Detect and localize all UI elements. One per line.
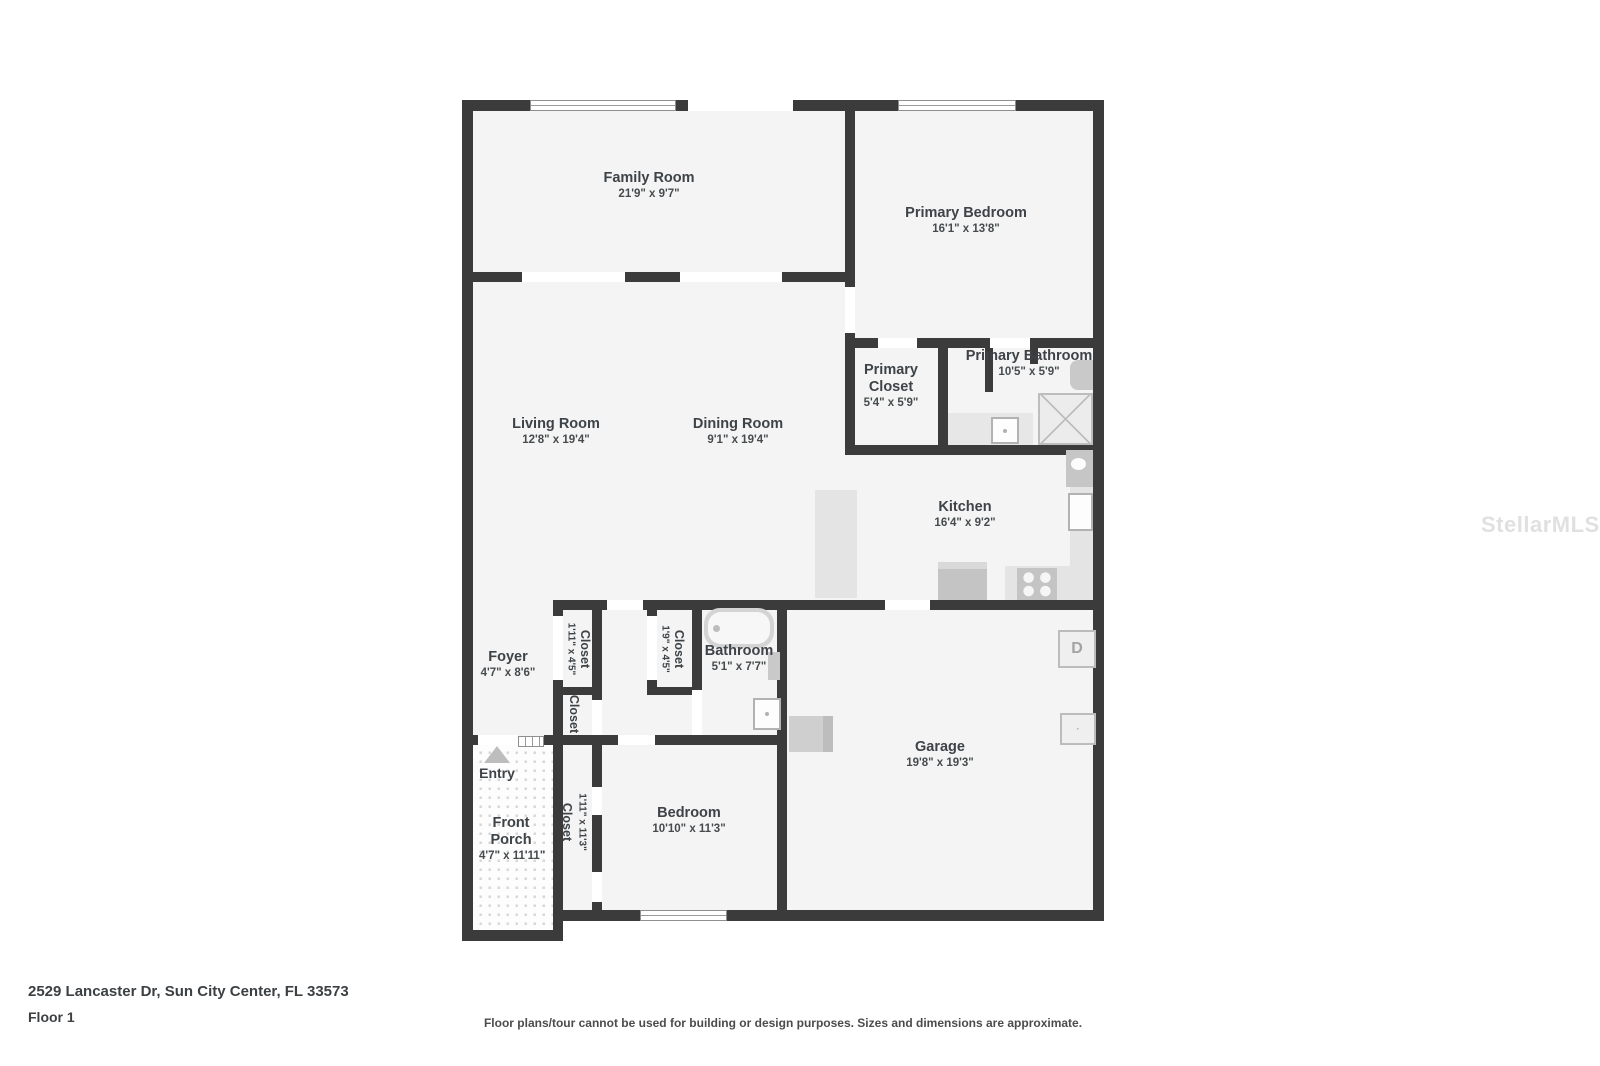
room-label-living-room: Living Room 12'8" x 19'4" — [512, 416, 600, 448]
room-name: Primary Closet — [855, 362, 927, 396]
stellar-mls-watermark: StellarMLS — [1481, 512, 1600, 538]
shower-icon — [1038, 393, 1093, 445]
door-opening — [592, 787, 602, 815]
room-dims: 5'1" x 7'7" — [705, 661, 773, 675]
door-opening — [522, 272, 625, 282]
wall — [625, 272, 680, 282]
room-label-front-porch: Front Porch 4'7" x 11'11" — [479, 815, 543, 864]
room-label-kitchen: Kitchen 16'4" x 9'2" — [934, 499, 995, 531]
wall — [1016, 100, 1104, 111]
door-opening — [845, 287, 855, 333]
wall — [917, 338, 990, 348]
dishwasher-icon — [938, 562, 987, 600]
wall — [938, 338, 948, 455]
room-name: Bathroom — [705, 643, 773, 660]
entry-sidelight-window — [518, 736, 544, 747]
room-label-family-room: Family Room 21'9" x 9'7" — [603, 170, 694, 202]
window — [640, 910, 727, 921]
toilet-icon — [753, 698, 781, 730]
wall — [777, 600, 787, 921]
room-dims: 10'5" x 5'9" — [966, 366, 1093, 380]
wall — [1030, 338, 1104, 348]
room-name: Primary Bedroom — [905, 205, 1027, 222]
room-label-bedroom: Bedroom 10'10" x 11'3" — [652, 805, 725, 837]
room-label-hall-closet-a: Closet — [578, 630, 592, 668]
property-address: 2529 Lancaster Dr, Sun City Center, FL 3… — [28, 983, 349, 1000]
room-label-bathroom: Bathroom 5'1" x 7'7" — [705, 643, 773, 675]
door-opening — [878, 338, 917, 348]
room-label-entry: Entry — [479, 765, 515, 781]
wall — [655, 735, 787, 745]
kitchen-sink-icon — [1066, 450, 1093, 487]
wall — [553, 600, 563, 616]
door-opening — [647, 616, 657, 680]
room-label-foyer: Foyer 4'7" x 8'6" — [481, 649, 536, 681]
door-opening — [618, 735, 655, 745]
room-dims: 1'11" x 11'3" — [577, 793, 588, 851]
wall — [845, 333, 855, 455]
room-label-bedroom-closet: Closet — [560, 803, 574, 841]
room-dims: 5'4" x 5'9" — [855, 397, 927, 411]
door-opening — [990, 338, 1030, 348]
room-label-primary-closet: Primary Closet 5'4" x 5'9" — [855, 362, 927, 411]
wall — [930, 600, 1104, 610]
dryer-icon: D — [1058, 630, 1096, 668]
room-name: Bedroom — [652, 805, 725, 822]
room-name: Front Porch — [479, 815, 543, 849]
door-opening — [688, 100, 793, 111]
wall — [592, 687, 602, 700]
room-name: Primary Bathroom — [966, 348, 1093, 365]
floor-label: Floor 1 — [28, 1009, 75, 1025]
wall — [782, 272, 845, 282]
door-opening — [592, 700, 602, 735]
wall — [793, 100, 898, 111]
wall — [592, 735, 602, 787]
entry-arrow-icon — [484, 746, 510, 763]
wall — [1093, 100, 1104, 921]
wall — [727, 910, 1104, 921]
room-dims: 16'4" x 9'2" — [934, 517, 995, 531]
wall — [845, 111, 855, 287]
refrigerator-icon — [1068, 493, 1093, 531]
door-opening — [607, 600, 643, 610]
room-label-dining-room: Dining Room 9'1" x 19'4" — [693, 416, 783, 448]
wall — [544, 735, 618, 745]
door-opening — [592, 872, 602, 902]
water-heater-icon — [789, 716, 833, 752]
wall — [462, 930, 563, 941]
entry-door-opening — [478, 735, 518, 745]
room-name: Dining Room — [693, 416, 783, 433]
door-opening — [680, 272, 782, 282]
dryer-label: D — [1071, 640, 1083, 658]
room-dims: 4'7" x 8'6" — [481, 667, 536, 681]
wall — [676, 100, 688, 111]
room-name: Family Room — [603, 170, 694, 187]
door-opening — [885, 600, 930, 610]
disclaimer-text: Floor plans/tour cannot be used for buil… — [484, 1016, 1082, 1030]
wall — [592, 600, 602, 695]
wall — [553, 910, 640, 921]
wall — [462, 735, 478, 745]
room-dims: 12'8" x 19'4" — [512, 434, 600, 448]
room-label-primary-bedroom: Primary Bedroom 16'1" x 13'8" — [905, 205, 1027, 237]
toilet-icon — [991, 417, 1019, 444]
wall — [647, 600, 657, 616]
door-opening — [553, 616, 563, 680]
washer-icon: · — [1060, 713, 1096, 745]
room-dims: 10'10" x 11'3" — [652, 823, 725, 837]
room-dims: 1'9" x 4'5" — [660, 625, 671, 673]
wall — [692, 600, 702, 690]
room-dims: 21'9" x 9'7" — [603, 188, 694, 202]
room-name: Kitchen — [934, 499, 995, 516]
wall — [592, 815, 602, 872]
bathtub-icon — [704, 608, 774, 648]
room-dims: 1'11" x 4'5" — [566, 623, 577, 676]
room-label-hall-closet-c: Closet — [567, 695, 581, 733]
window — [898, 100, 1016, 111]
door-opening — [692, 690, 702, 735]
wall — [473, 272, 522, 282]
room-dims: 9'1" x 19'4" — [693, 434, 783, 448]
room-dims: 4'7" x 11'11" — [479, 850, 543, 864]
room-dims: 19'8" x 19'3" — [906, 757, 974, 771]
room-name: Living Room — [512, 416, 600, 433]
room-name: Foyer — [481, 649, 536, 666]
room-name: Garage — [906, 739, 974, 756]
floor-plan: D · Family Room 21'9" x 9'7" Primary Bed… — [0, 0, 1600, 1066]
room-label-primary-bathroom: Primary Bathroom 10'5" x 5'9" — [966, 348, 1093, 380]
kitchen-pantry-counter — [815, 490, 857, 598]
window — [530, 100, 676, 111]
room-dims: 16'1" x 13'8" — [905, 223, 1027, 237]
room-label-garage: Garage 19'8" x 19'3" — [906, 739, 974, 771]
stove-icon — [1017, 568, 1057, 600]
wall — [462, 100, 473, 941]
wall — [845, 338, 878, 348]
room-label-hall-closet-b: Closet — [672, 630, 686, 668]
